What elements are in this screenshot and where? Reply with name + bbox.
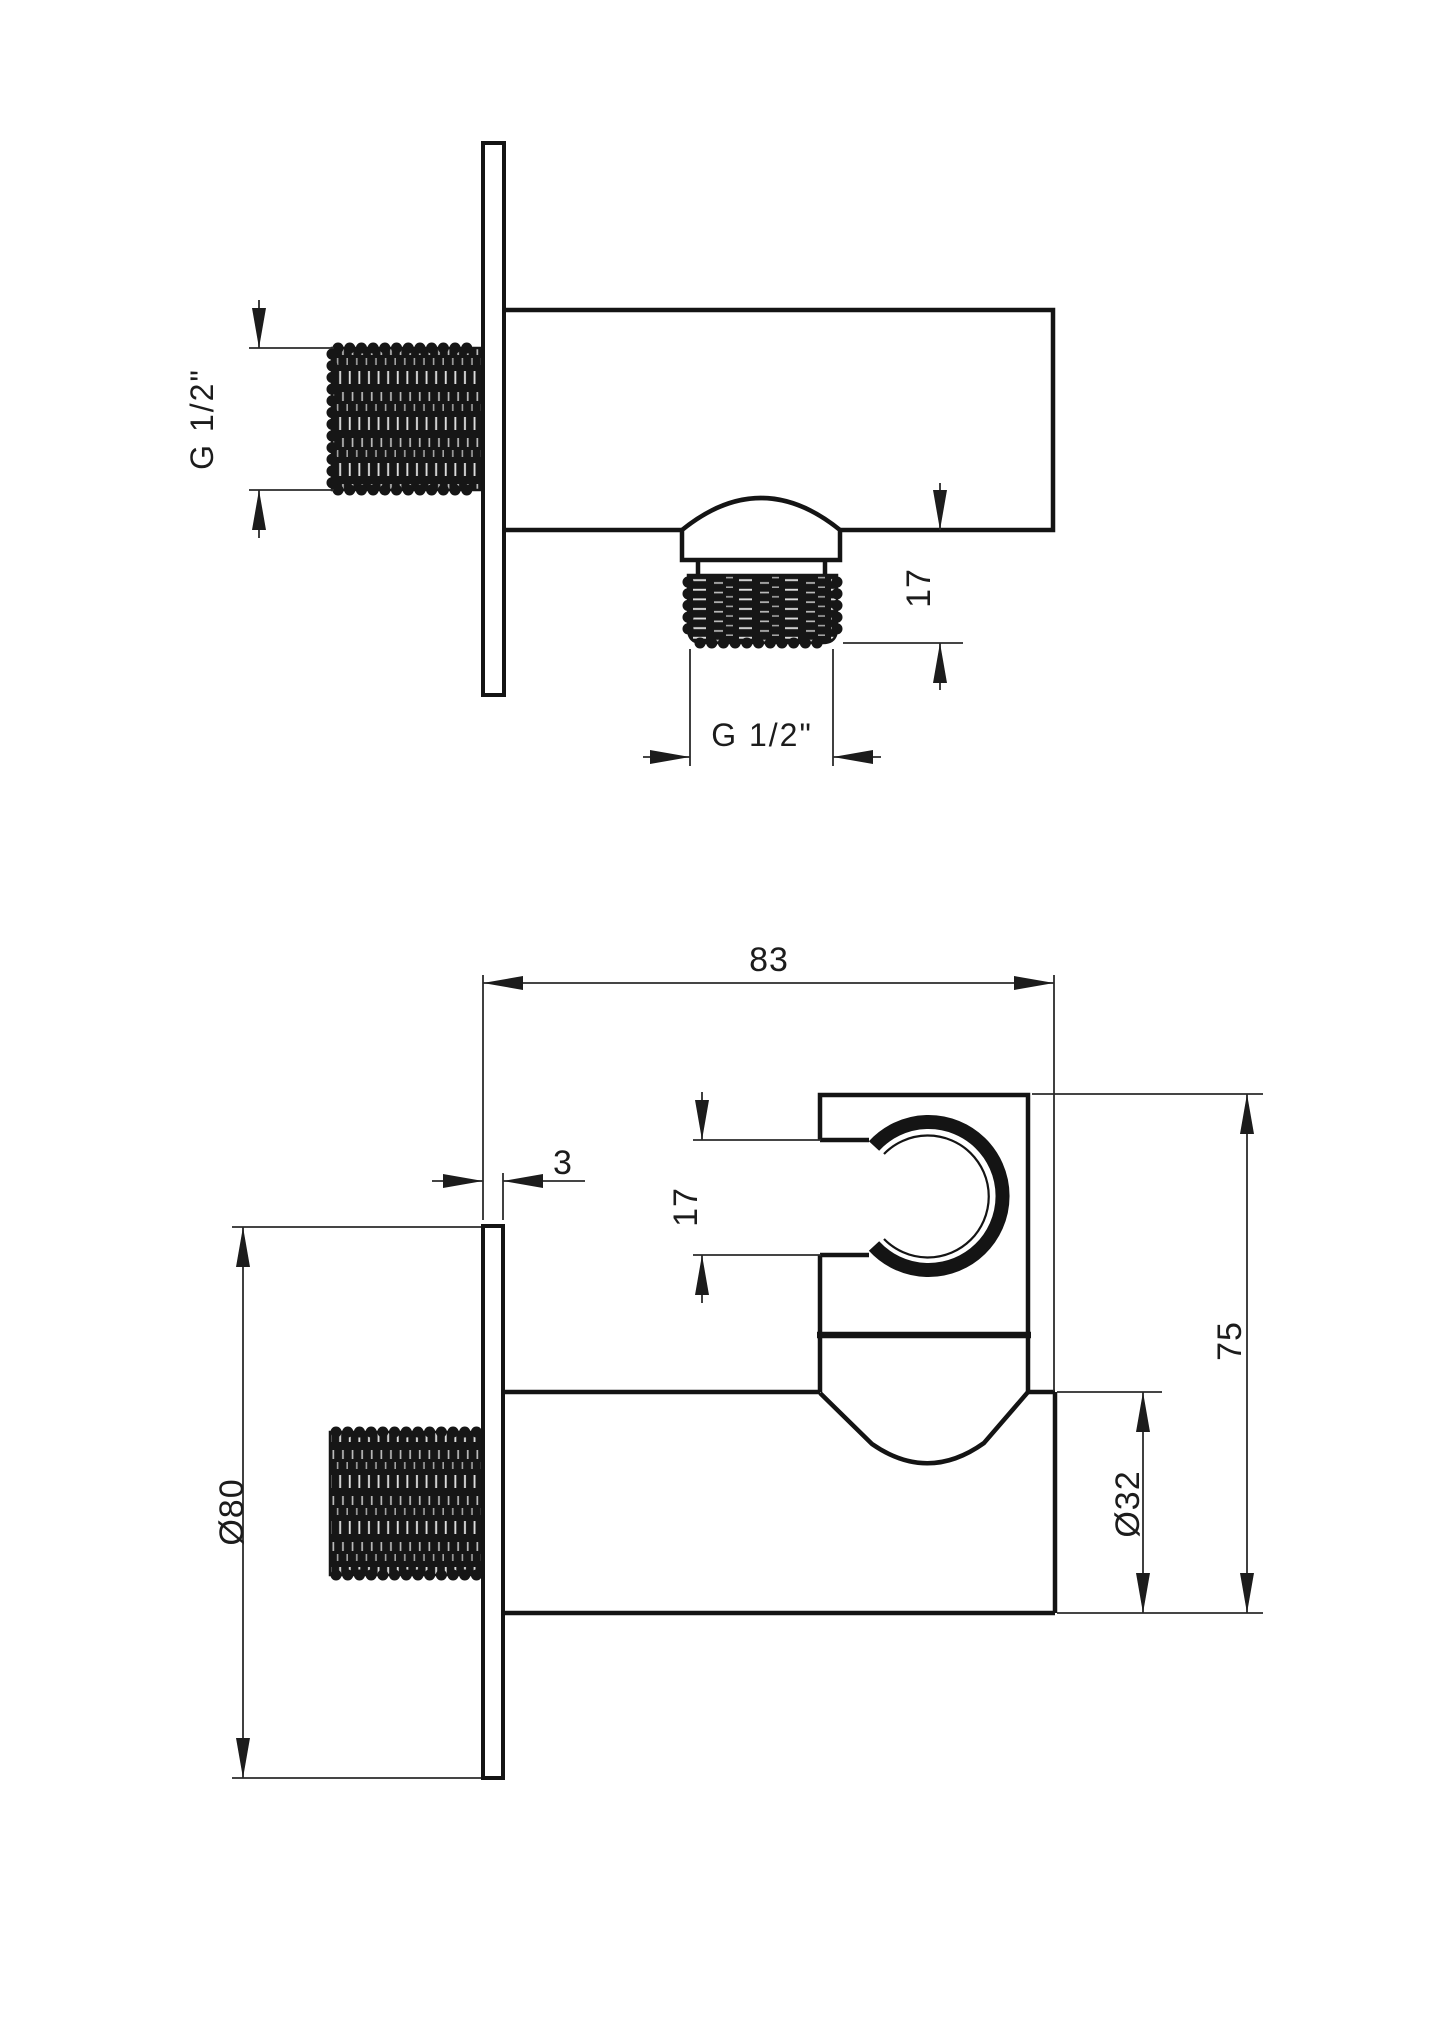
wall-plate-front (483, 1226, 503, 1778)
wall-plate (483, 143, 504, 695)
dim-outlet-length-label: 17 (900, 568, 938, 608)
inlet-thread (332, 348, 483, 490)
dim-inlet-thread-label: G 1/2" (184, 368, 220, 470)
dim-total-depth-label: 83 (749, 941, 789, 979)
dim-body-diameter-label: Ø32 (1109, 1470, 1147, 1537)
technical-drawing-canvas: G 1/2" 17 G 1/2" (0, 0, 1445, 2043)
drawing-page: G 1/2" 17 G 1/2" (0, 0, 1445, 2043)
background (0, 0, 1445, 2043)
inlet-thread-front (330, 1432, 483, 1575)
dim-holder-slot-label: 17 (667, 1187, 705, 1227)
outlet-thread (688, 575, 837, 643)
dim-plate-diameter-label: Ø80 (213, 1478, 251, 1545)
dim-total-height-label: 75 (1211, 1321, 1249, 1361)
dim-outlet-thread-label: G 1/2" (711, 717, 813, 753)
dim-plate-thickness-label: 3 (553, 1144, 573, 1182)
